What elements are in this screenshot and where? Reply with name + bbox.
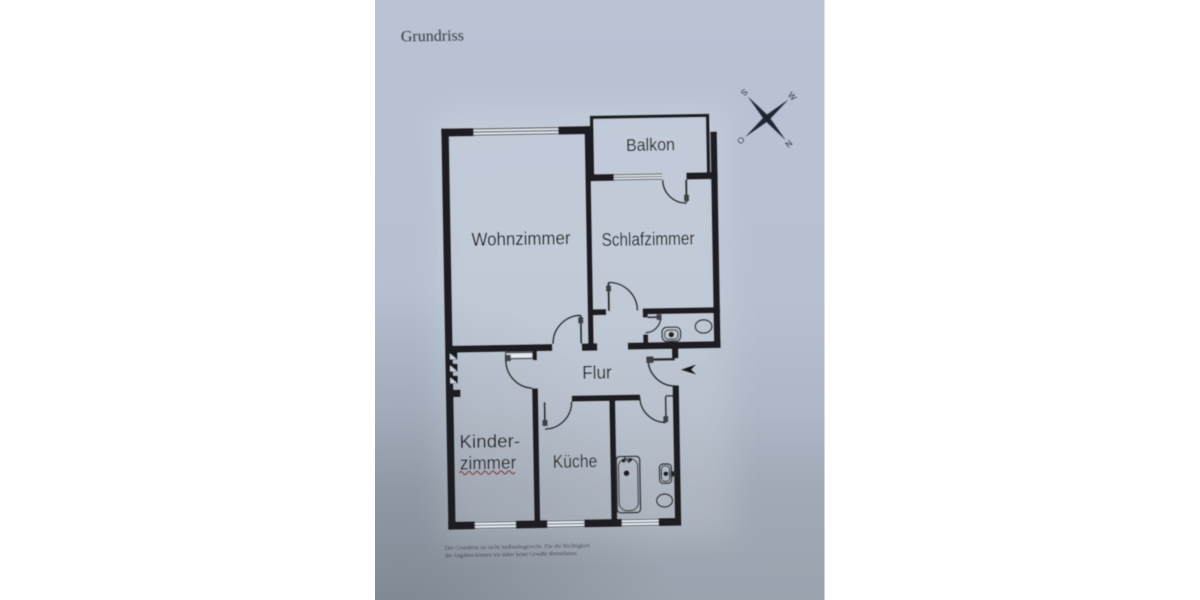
svg-text:Grundriss: Grundriss <box>401 27 464 45</box>
svg-text:Balkon: Balkon <box>626 134 675 155</box>
svg-text:Flur: Flur <box>582 361 612 383</box>
svg-text:Kinder-: Kinder- <box>459 430 520 452</box>
svg-text:Wohnzimmer: Wohnzimmer <box>471 227 570 250</box>
svg-text:Schlafzimmer: Schlafzimmer <box>601 228 694 251</box>
svg-text:Küche: Küche <box>553 450 598 472</box>
